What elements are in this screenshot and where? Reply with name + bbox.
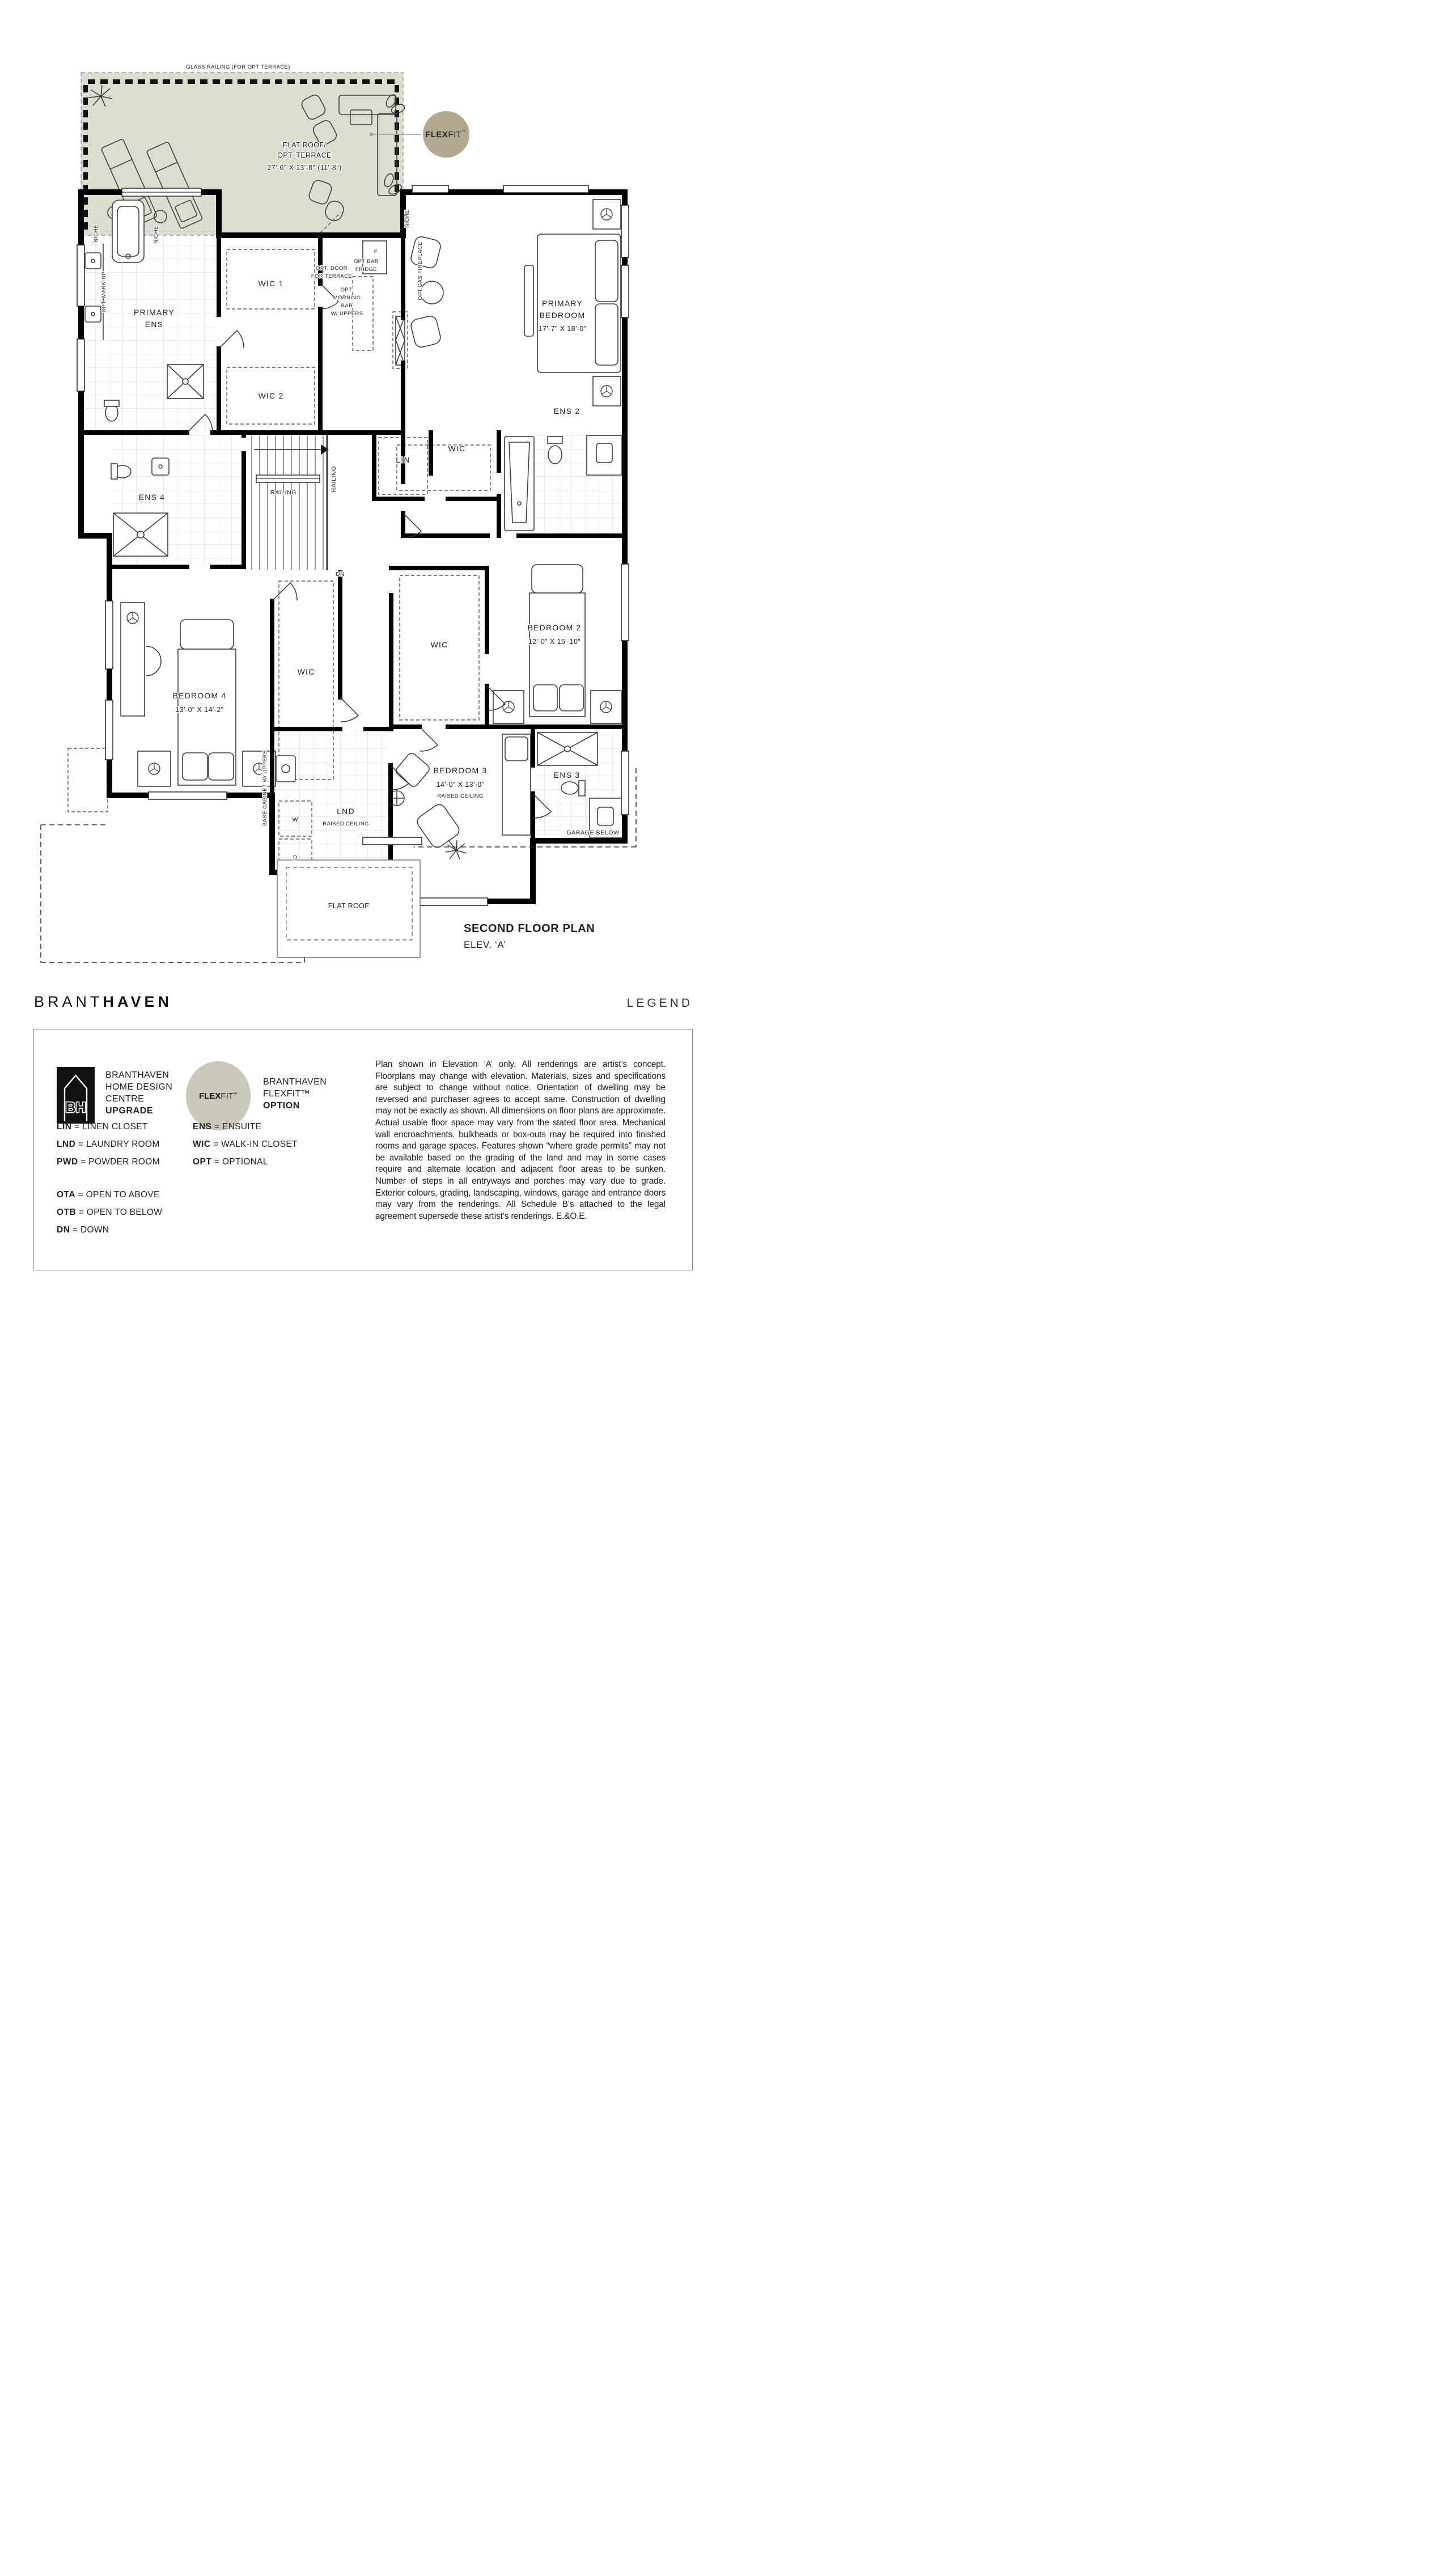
abbr-otb-key: OTB: [57, 1207, 76, 1217]
label-primary-ens-1: PRIMARY: [134, 308, 175, 317]
equals-sign: =: [80, 1157, 86, 1167]
label-bedroom2: BEDROOM 2: [528, 623, 582, 632]
abbr-pwd-key: PWD: [57, 1157, 78, 1167]
label-opt-markup: OPT. MARK-UP: [101, 272, 107, 312]
abbr-opt-value: OPTIONAL: [222, 1157, 268, 1167]
flexfit-legend-badge: FLEXFIT™: [186, 1061, 251, 1130]
abbr-dn-key: DN: [57, 1225, 70, 1235]
label-lnd-note: RAISED CEILING: [323, 821, 369, 827]
label-primary-ens-2: ENS: [145, 320, 163, 329]
footer-brand-row: BRANTHAVEN LEGEND: [34, 993, 693, 1011]
abbr-wic: WIC = WALK-IN CLOSET: [193, 1139, 298, 1150]
flexfit-badge-bold: FLEX: [199, 1091, 221, 1101]
bh-home-design-logo: BH: [57, 1067, 95, 1126]
floorplan-page: GLASS RAILING (FOR OPT TERRACE) FLAT ROO…: [0, 0, 724, 1288]
terrace-dims: 27'-6" X 13'-8" (11'-8"): [267, 164, 341, 172]
abbr-ota-value: OPEN TO ABOVE: [86, 1190, 160, 1200]
label-lnd: LND: [337, 807, 355, 816]
label-dryer: D: [293, 854, 298, 861]
floor-plan-drawing: GLASS RAILING (FOR OPT TERRACE) FLAT ROO…: [0, 0, 724, 964]
equals-sign: =: [214, 1122, 219, 1132]
label-wic-bedroom4: WIC: [298, 667, 315, 676]
label-railing-v: RAILING: [331, 466, 337, 492]
primary-bedroom-furniture: [410, 200, 621, 406]
abbr-ens-value: ENSUITE: [222, 1122, 261, 1132]
glass-railing-label: GLASS RAILING (FOR OPT TERRACE): [186, 64, 290, 70]
abbr-ota: OTA = OPEN TO ABOVE: [57, 1190, 160, 1200]
flexfit-badge: FLEXFIT™: [423, 111, 469, 158]
fireplace: [396, 316, 405, 365]
equals-sign: =: [78, 1190, 83, 1200]
equals-sign: =: [214, 1157, 219, 1167]
label-bedroom3-dims: 14'-0" X 13'-0": [437, 781, 485, 789]
abbr-pwd-value: POWDER ROOM: [88, 1157, 160, 1167]
plan-title-elevation: ELEV. ‘A’: [464, 939, 506, 950]
label-opt-bar-2: FRIDGE: [355, 266, 377, 273]
label-niche-left: NICHE: [93, 224, 99, 243]
label-bedroom3-note: RAISED CEILING: [437, 793, 484, 799]
abbr-dn: DN = DOWN: [57, 1225, 109, 1235]
abbr-otb-value: OPEN TO BELOW: [87, 1207, 162, 1217]
equals-sign: =: [78, 1139, 83, 1149]
label-primary-bedroom-2: BEDROOM: [540, 311, 586, 320]
label-garage-below: GARAGE BELOW: [567, 829, 620, 836]
label-opt-door-2: FOR TERRACE: [311, 273, 352, 279]
abbr-wic-value: WALK-IN CLOSET: [221, 1139, 298, 1149]
upgrade-line2: HOME DESIGN: [105, 1081, 172, 1093]
flexfit-badge-light: FIT: [221, 1091, 234, 1101]
abbr-ota-key: OTA: [57, 1190, 75, 1200]
legend-heading: LEGEND: [627, 997, 693, 1010]
abbr-wic-key: WIC: [193, 1139, 211, 1149]
label-railing-h: RAILING: [270, 489, 296, 496]
abbr-opt: OPT = OPTIONAL: [193, 1157, 268, 1167]
abbr-ens-key: ENS: [193, 1122, 211, 1132]
abbr-lnd-key: LND: [57, 1139, 75, 1149]
label-ens2: ENS 2: [554, 406, 580, 416]
label-bedroom4-dims: 13'-0" X 14'-2": [176, 706, 224, 714]
plan-title: SECOND FLOOR PLAN: [464, 922, 595, 935]
flexfit-legend-text: BRANTHAVEN FLEXFIT™ OPTION: [263, 1076, 327, 1112]
label-morning-4: W/ UPPERS: [331, 311, 363, 317]
abbr-lin: LIN = LINEN CLOSET: [57, 1122, 148, 1132]
label-niche-fireplace: NICHE: [404, 210, 410, 228]
flexfit-line1: BRANTHAVEN: [263, 1076, 327, 1088]
label-morning-3: BAR: [341, 303, 353, 309]
abbr-otb: OTB = OPEN TO BELOW: [57, 1207, 162, 1218]
label-washer: W: [293, 816, 299, 823]
svg-text:FLEXFIT™: FLEXFIT™: [425, 130, 466, 139]
label-bedroom2-dims: 12'-0" X 15'-10": [528, 638, 581, 646]
flexfit-line3: OPTION: [263, 1100, 327, 1112]
legend-box: BH BRANTHAVEN HOME DESIGN CENTRE UPGRADE…: [33, 1029, 693, 1270]
staircase[interactable]: [252, 434, 329, 570]
label-wic1: WIC 1: [259, 279, 284, 288]
label-primary-bedroom-1: PRIMARY: [542, 299, 583, 308]
label-dn: DN: [336, 571, 345, 578]
label-ens4: ENS 4: [139, 493, 165, 502]
upgrade-legend-text: BRANTHAVEN HOME DESIGN CENTRE UPGRADE: [105, 1069, 172, 1117]
label-morning-1: OPT.: [341, 287, 354, 293]
label-lin: LIN: [396, 455, 410, 464]
label-gas-fireplace: OPT.GAS FIREPLACE: [417, 241, 423, 300]
label-bedroom4: BEDROOM 4: [173, 691, 227, 700]
abbr-lin-value: LINEN CLOSET: [82, 1122, 148, 1132]
upgrade-line1: BRANTHAVEN: [105, 1069, 172, 1081]
brand-light: BRANT: [34, 993, 103, 1010]
abbr-lnd-value: LAUNDRY ROOM: [86, 1139, 160, 1149]
label-niche-right: NICHE: [153, 226, 159, 244]
bh-logo-text: BH: [65, 1100, 86, 1116]
equals-sign: =: [79, 1207, 84, 1217]
label-primary-bedroom-dims: 17'-7" X 18'-0": [539, 325, 587, 333]
terrace-label-line1: FLAT ROOF/: [283, 141, 327, 149]
branthaven-logo-text: BRANTHAVEN: [34, 993, 172, 1011]
legal-disclaimer: Plan shown in Elevation ‘A’ only. All re…: [375, 1059, 666, 1222]
upgrade-line3: CENTRE: [105, 1093, 172, 1105]
abbr-pwd: PWD = POWDER ROOM: [57, 1157, 160, 1167]
equals-sign: =: [74, 1122, 79, 1132]
equals-sign: =: [213, 1139, 218, 1149]
label-morning-2: MORNING: [333, 295, 361, 301]
living-room-below-outline: [41, 825, 304, 963]
label-bedroom3: BEDROOM 3: [434, 766, 488, 775]
label-wic-bedroom2: WIC: [431, 640, 448, 649]
label-base-cabinet: BASE CABINET W/ UPPERS: [262, 750, 268, 826]
brand-bold: HAVEN: [103, 993, 173, 1010]
flexfit-line2: FLEXFIT™: [263, 1088, 327, 1100]
flexfit-badge-tm: ™: [234, 1092, 238, 1096]
abbr-lin-key: LIN: [57, 1122, 71, 1132]
abbr-dn-value: DOWN: [80, 1225, 109, 1235]
label-wic2: WIC 2: [259, 391, 284, 400]
abbr-ens: ENS = ENSUITE: [193, 1122, 261, 1132]
terrace-label-line2: OPT. TERRACE: [277, 151, 332, 159]
abbr-opt-key: OPT: [193, 1157, 211, 1167]
label-flat-roof-lower: FLAT ROOF: [328, 902, 370, 910]
label-ens3: ENS 3: [554, 770, 580, 779]
abbr-lnd: LND = LAUNDRY ROOM: [57, 1139, 160, 1150]
label-opt-door-1: OPT. DOOR: [316, 265, 348, 272]
label-fridge-f: F: [374, 249, 378, 255]
label-wic-hall: WIC: [448, 444, 466, 453]
equals-sign: =: [73, 1225, 78, 1235]
upgrade-line4: UPGRADE: [105, 1105, 172, 1117]
label-opt-bar-1: OPT BAR: [354, 259, 379, 265]
